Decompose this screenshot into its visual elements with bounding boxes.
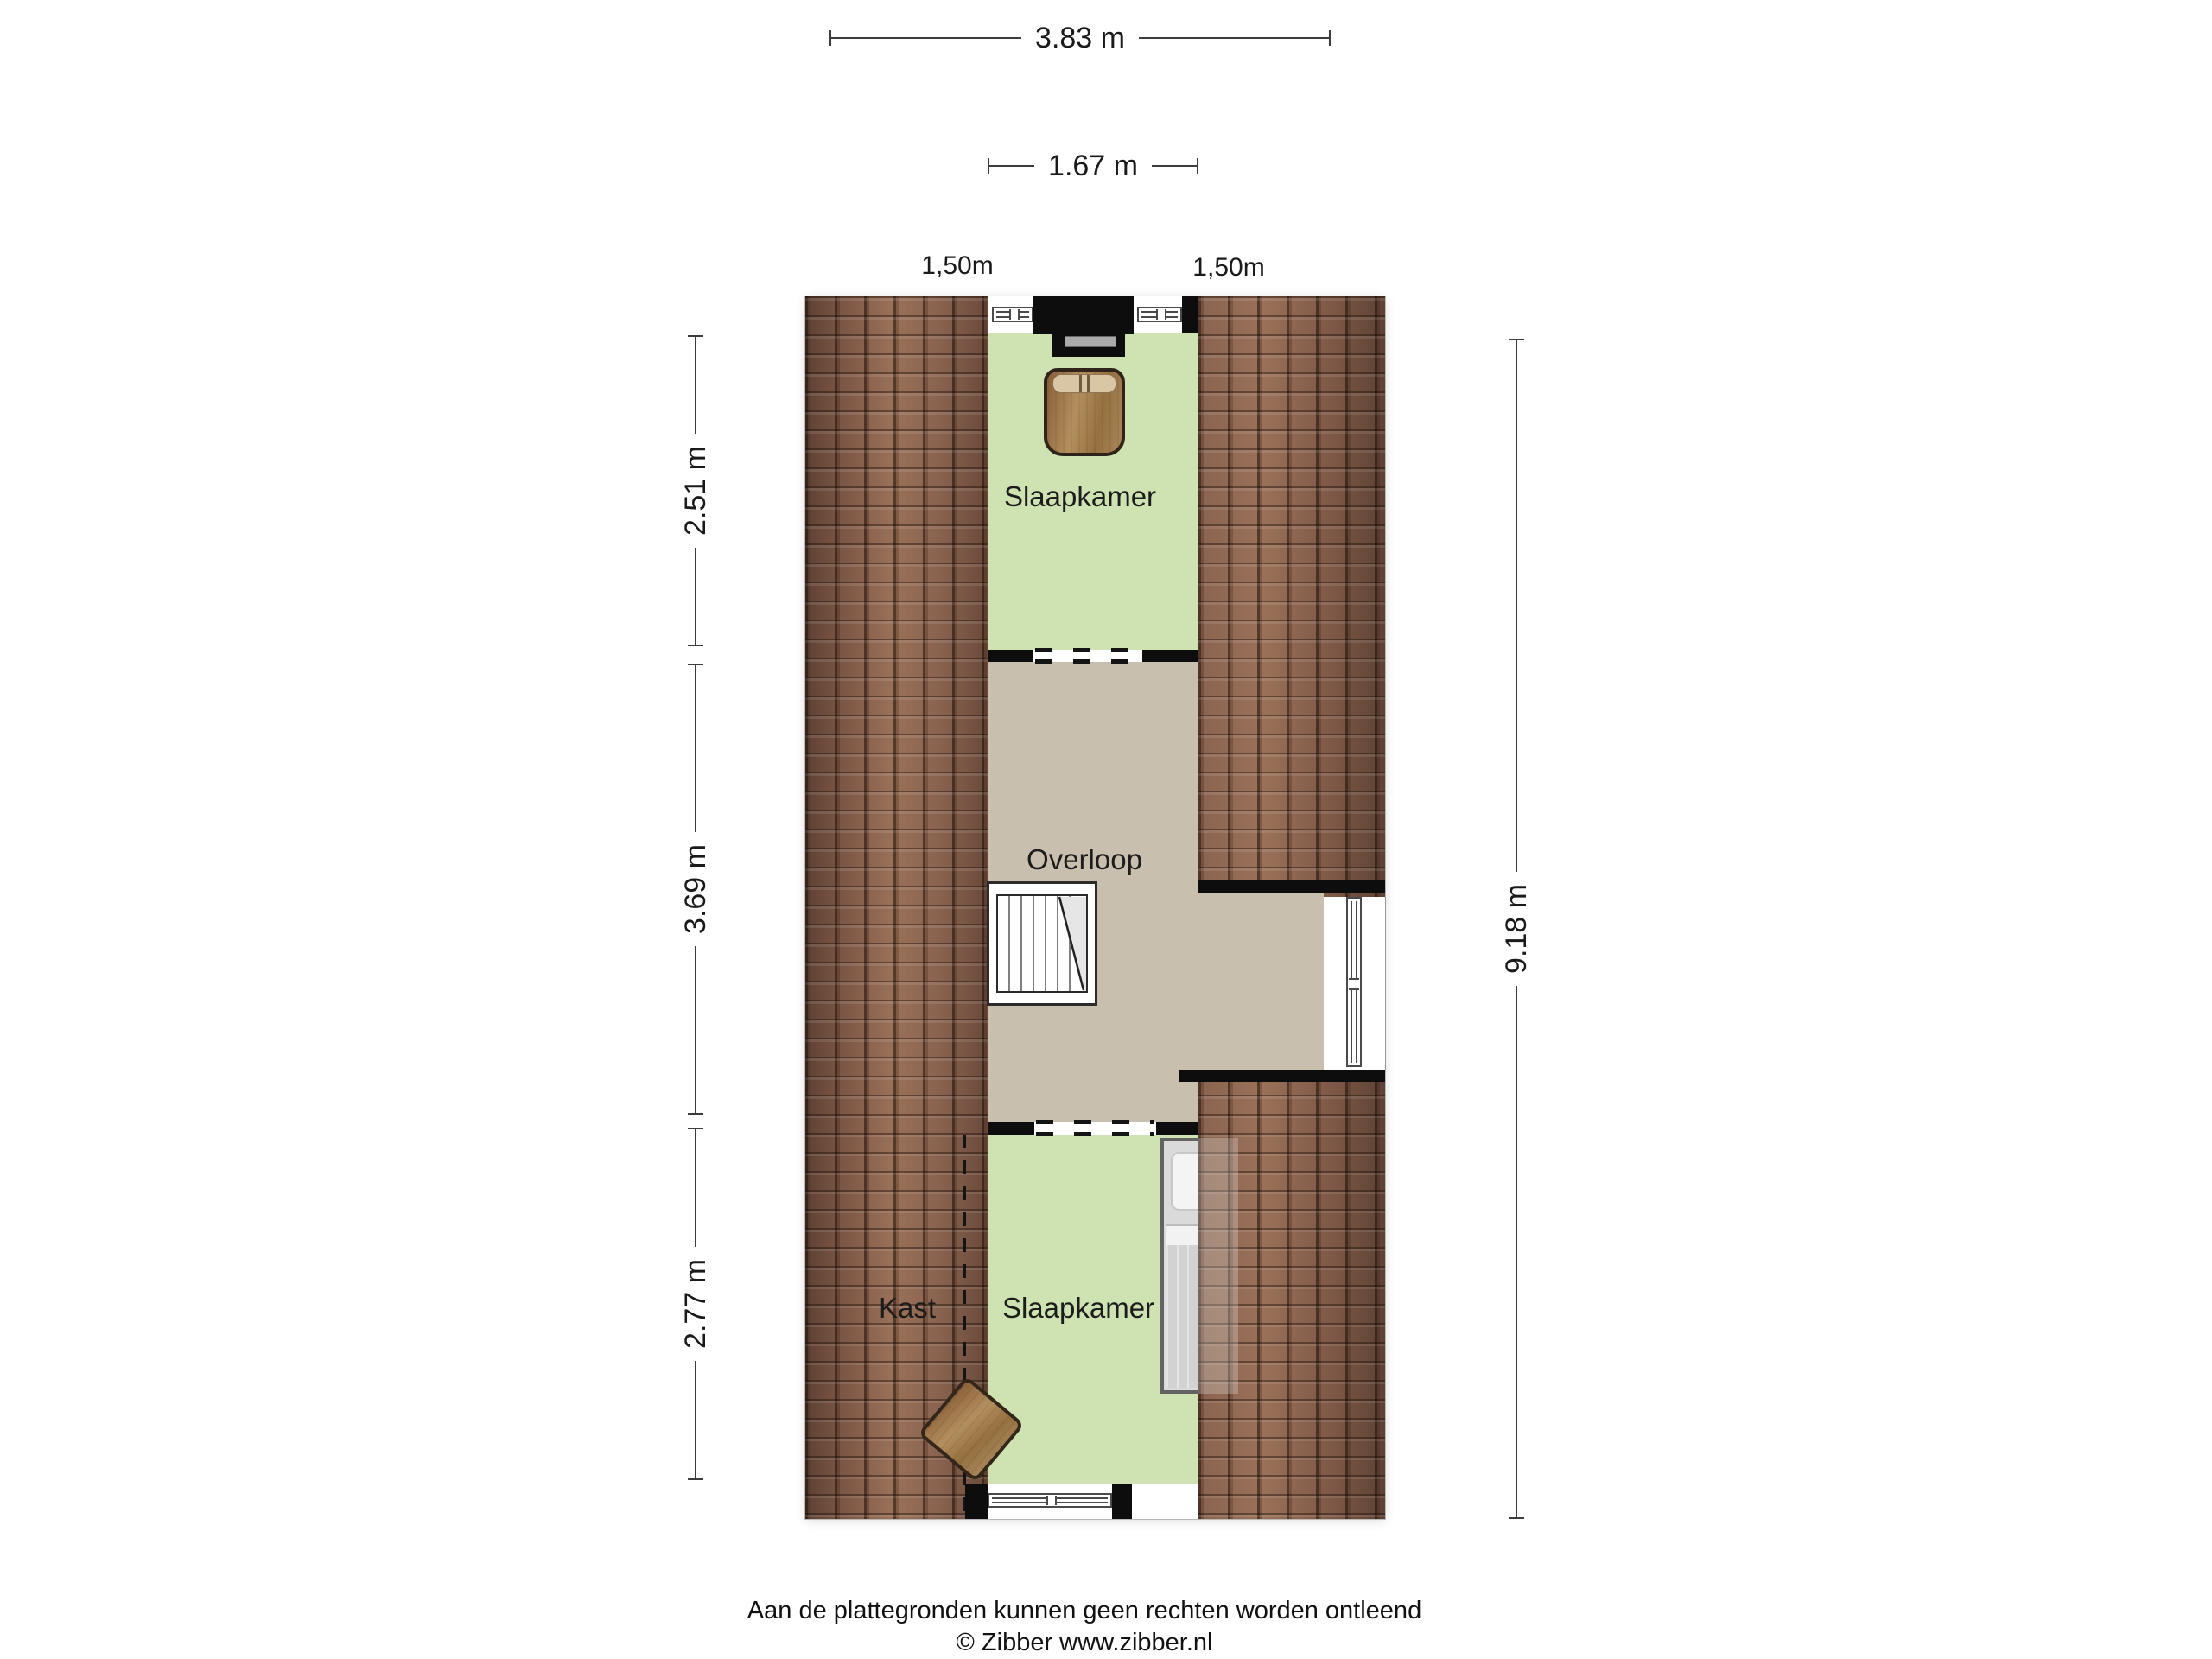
dormer-chimney-block xyxy=(1033,296,1134,334)
interior-wall-top-left xyxy=(988,650,1033,662)
dim-line xyxy=(831,37,1021,39)
dim-line xyxy=(1152,165,1197,167)
dim-left-segment-3: 2.77 m xyxy=(688,1128,703,1480)
dim-left-segment-1-label: 2.51 m xyxy=(679,434,713,548)
wall-stub-bottom-left xyxy=(965,1484,988,1519)
dim-inner-width: 1.67 m xyxy=(988,150,1198,181)
floor-plan: Slaapkamer Overloop Slaapkamer Kast xyxy=(805,296,1385,1519)
dim-total-width-label: 3.83 m xyxy=(1021,22,1139,55)
interior-wall-top-right xyxy=(1142,650,1198,662)
dim-line xyxy=(1139,37,1329,39)
dim-tick xyxy=(688,645,703,646)
chair-symbol xyxy=(1044,368,1125,456)
dim-tick xyxy=(1329,30,1331,46)
dim-left-segment-2: 3.69 m xyxy=(688,664,703,1115)
dim-tick xyxy=(1509,1517,1524,1519)
stairs-symbol xyxy=(987,881,1097,1006)
window-symbol-bottom xyxy=(988,1493,1112,1508)
dim-line xyxy=(695,1129,696,1247)
headroom-right-label: 1,50m xyxy=(1192,253,1264,283)
interior-wall-bottom-right xyxy=(1156,1122,1198,1135)
door-opening-bottom xyxy=(1034,1122,1156,1135)
footer: Aan de plattegronden kunnen geen rechten… xyxy=(747,1595,1421,1659)
window-symbol-right xyxy=(1346,897,1362,1067)
landing-alcove-floor xyxy=(1198,892,1324,1070)
window-symbol-top-left xyxy=(992,307,1033,322)
floorplan-canvas: 3.83 m 1.67 m 1,50m 1,50m 2.51 m 3.69 m … xyxy=(0,0,2212,1659)
dim-line xyxy=(695,665,696,832)
door-opening-top xyxy=(1033,650,1142,662)
wall-stub-top-right xyxy=(1182,296,1198,333)
dim-line xyxy=(695,946,696,1113)
dim-tick xyxy=(1197,158,1198,174)
dim-left-segment-2-label: 3.69 m xyxy=(679,832,713,946)
dim-line xyxy=(1516,340,1517,872)
dim-line xyxy=(1516,986,1517,1517)
room-label-closet: Kast xyxy=(879,1292,936,1325)
dim-tick xyxy=(688,1478,703,1480)
dim-line xyxy=(695,548,696,645)
dim-line xyxy=(989,165,1034,167)
chair-backrest xyxy=(1052,374,1116,393)
room-label-bedroom-bottom: Slaapkamer xyxy=(1002,1292,1154,1325)
wall-stub-bottom-right xyxy=(1112,1484,1132,1519)
dim-total-height-label: 9.18 m xyxy=(1500,872,1534,986)
bed-under-roof-hint xyxy=(1198,1138,1238,1394)
alcove-wall-bottom xyxy=(1179,1070,1385,1082)
dim-total-height: 9.18 m xyxy=(1509,339,1524,1519)
alcove-wall-top xyxy=(1198,880,1385,893)
window-symbol-top-right xyxy=(1137,307,1182,322)
roof-slope-left xyxy=(805,296,988,1519)
footer-disclaimer: Aan de plattegronden kunnen geen rechten… xyxy=(747,1595,1421,1627)
room-label-bedroom-top: Slaapkamer xyxy=(1004,480,1156,513)
room-label-landing: Overloop xyxy=(1027,843,1142,876)
headroom-left-label: 1,50m xyxy=(921,251,993,281)
interior-wall-bottom-left xyxy=(988,1122,1034,1135)
dim-total-width: 3.83 m xyxy=(829,22,1331,54)
dim-line xyxy=(695,1361,696,1478)
dim-tick xyxy=(688,1113,703,1115)
dim-left-segment-1: 2.51 m xyxy=(688,335,703,646)
footer-credit: © Zibber www.zibber.nl xyxy=(747,1627,1421,1659)
dim-left-segment-3-label: 2.77 m xyxy=(679,1247,713,1361)
dim-inner-width-label: 1.67 m xyxy=(1034,149,1152,183)
dim-line xyxy=(695,337,696,434)
chimney-vent-bar xyxy=(1065,336,1116,347)
